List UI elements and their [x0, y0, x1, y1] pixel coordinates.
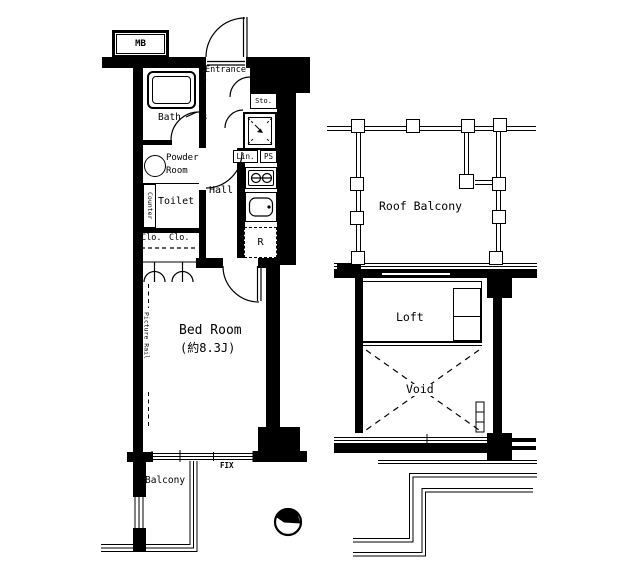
rail-post	[351, 119, 365, 133]
washbasin-icon	[144, 155, 166, 177]
washing-machine-space-inner	[248, 117, 272, 145]
bedroom-door	[223, 266, 261, 302]
rail-post	[351, 251, 365, 265]
wall-segment	[258, 427, 300, 453]
wall-pillar	[337, 263, 361, 278]
closet2-label: Clo.	[169, 234, 189, 243]
wall-segment	[277, 93, 296, 265]
north-indicator-icon	[275, 509, 301, 535]
loft-void-divider	[363, 342, 482, 346]
bedroom-picture-rail-label: Picture Rail	[143, 312, 150, 359]
roof-balcony-rail-left	[356, 131, 361, 265]
meter-box-inner: MB	[116, 34, 165, 54]
counter-label: Counter	[146, 192, 153, 219]
storage-label: Sto.	[255, 98, 272, 105]
wall-segment	[266, 263, 280, 432]
bath-label: Bath	[158, 113, 181, 123]
loft-cabinet	[453, 288, 481, 341]
meter-box-label: MB	[135, 40, 146, 49]
pipe-space-label: PS	[264, 153, 273, 161]
storage-box: Sto.	[250, 93, 277, 109]
linen-label: Lin.	[236, 153, 254, 161]
wall-segment	[258, 258, 280, 268]
loft-label: Loft	[396, 312, 424, 324]
closet-doors	[141, 248, 196, 282]
wall-opening	[382, 273, 450, 276]
wall-segment	[246, 57, 310, 68]
wall-segment	[133, 67, 143, 462]
entrance-picture-rail-label: Picture Rail	[200, 74, 207, 121]
hall-label: Hall	[209, 186, 233, 196]
wall-stub	[512, 438, 536, 442]
wall-segment	[250, 68, 310, 93]
rail-post	[492, 177, 506, 191]
kitchen-sink-icon	[245, 192, 277, 222]
linen-box: Lin.	[233, 150, 258, 163]
rail-post	[350, 177, 364, 191]
wall-segment	[133, 528, 146, 552]
rail-post	[493, 118, 507, 132]
wall-segment	[253, 451, 307, 462]
rail-post	[489, 251, 503, 265]
refrigerator-space: R	[244, 227, 277, 258]
wall-segment	[127, 452, 153, 462]
wall-segment	[196, 258, 223, 268]
storage-door	[230, 77, 250, 97]
balcony-label: Balcony	[145, 476, 185, 486]
rail-post	[461, 119, 475, 133]
pipe-space-box: PS	[260, 150, 277, 163]
floor-plan: MB Sto. Lin. PS R Counter	[0, 0, 640, 569]
rail-post	[406, 119, 420, 133]
wall-segment	[199, 190, 206, 265]
rail-post	[350, 211, 364, 225]
wall-stub	[512, 446, 536, 450]
wall-segment	[102, 57, 206, 68]
roof-balcony-label: Roof Balcony	[379, 201, 462, 213]
bedroom-area-label: (約8.3J)	[180, 342, 235, 354]
powder-room-label-line2: Room	[166, 167, 188, 176]
wall-segment	[143, 140, 172, 145]
utility-door	[225, 110, 243, 128]
void-label: Void	[404, 384, 436, 396]
wall-pillar	[487, 271, 512, 298]
entrance-label: Entrance	[205, 66, 246, 75]
stove-icon-inner	[248, 170, 274, 186]
slab-edge-line	[334, 437, 487, 441]
powder-room-label-line1: Powder	[166, 154, 199, 163]
rail-post	[459, 174, 474, 189]
roof-balcony-rail-inner-vertical	[464, 131, 469, 176]
loft-cabinet-divider	[453, 316, 481, 317]
bathtub-icon-inner	[152, 76, 191, 104]
roof-balcony-rail-right	[496, 131, 501, 265]
bedroom-window	[152, 450, 253, 462]
closet1-label: Clo.	[141, 234, 161, 243]
bedroom-label: Bed Room	[179, 324, 242, 337]
wall-segment	[334, 443, 511, 453]
rail-post	[492, 210, 506, 224]
meter-box: MB	[112, 30, 169, 58]
toilet-label: Toilet	[158, 197, 194, 207]
refrigerator-label: R	[257, 238, 263, 248]
counter: Counter	[143, 184, 156, 228]
wall-segment	[493, 298, 502, 434]
fix-window-label: FIX	[220, 462, 234, 470]
entrance-door	[206, 17, 247, 65]
loft-ladder	[476, 402, 484, 432]
